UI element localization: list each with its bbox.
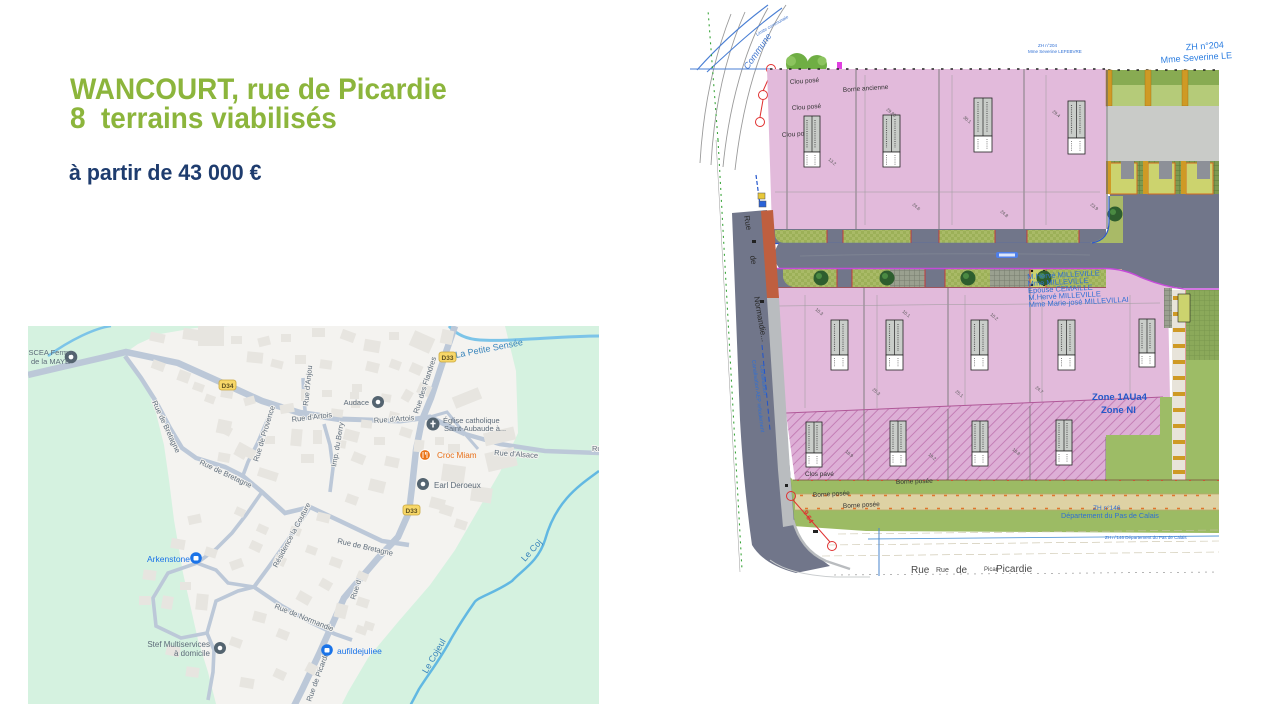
svg-text:Earl Deroeux: Earl Deroeux — [434, 481, 481, 490]
svg-text:Rue: Rue — [911, 565, 930, 576]
svg-text:Stef Multiservices: Stef Multiservices — [147, 640, 210, 649]
svg-text:D33: D33 — [442, 355, 454, 362]
svg-text:de la MAYE: de la MAYE — [31, 357, 70, 366]
svg-text:Mme Severine LEFEBVRE: Mme Severine LEFEBVRE — [1028, 49, 1082, 54]
svg-text:Mme Severine LE: Mme Severine LE — [1160, 50, 1232, 65]
svg-text:Clos pavé: Clos pavé — [805, 471, 834, 478]
svg-text:D33: D33 — [406, 508, 418, 515]
svg-text:Arkenstone: Arkenstone — [147, 554, 190, 564]
svg-text:Croc Miam: Croc Miam — [437, 451, 477, 460]
svg-text:Zone 1AUa4: Zone 1AUa4 — [1092, 392, 1148, 403]
svg-text:Ru: Ru — [592, 444, 602, 453]
svg-text:de: de — [956, 565, 968, 576]
svg-text:Département du Pas de Calais: Département du Pas de Calais — [1061, 511, 1159, 520]
svg-text:Zone NI: Zone NI — [1101, 405, 1136, 416]
svg-text:aufildejuliee: aufildejuliee — [337, 646, 382, 656]
svg-text:Picardie: Picardie — [996, 564, 1033, 575]
svg-text:SCEA Ferme: SCEA Ferme — [29, 348, 73, 357]
svg-text:ZH n°204: ZH n°204 — [1038, 43, 1058, 48]
svg-text:Audace: Audace — [344, 398, 369, 407]
svg-text:Rue: Rue — [936, 567, 949, 574]
svg-text:ZH n°146 Département du Pas de: ZH n°146 Département du Pas de Calais — [1105, 535, 1187, 540]
svg-text:Borne posée: Borne posée — [896, 478, 933, 486]
svg-text:Saint-Aubaude à...: Saint-Aubaude à... — [444, 424, 506, 433]
svg-text:à domicile: à domicile — [174, 649, 211, 658]
svg-text:D34: D34 — [222, 383, 234, 390]
